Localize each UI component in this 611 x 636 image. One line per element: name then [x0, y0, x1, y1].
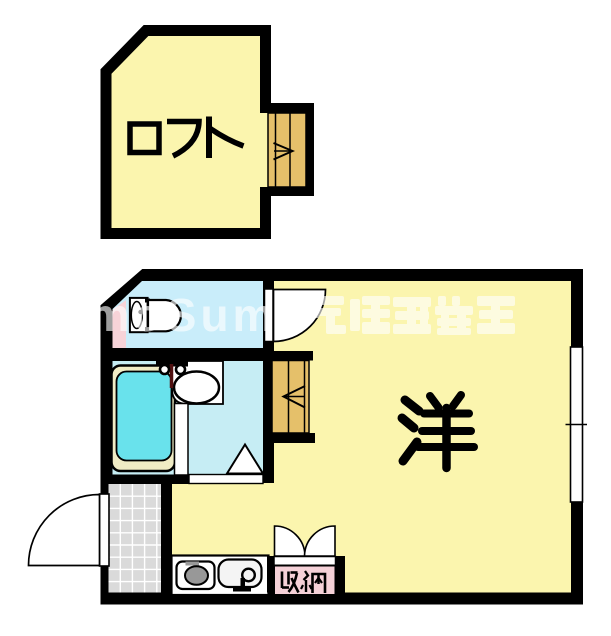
svg-text:SumoSumo: SumoSumo [22, 289, 310, 341]
